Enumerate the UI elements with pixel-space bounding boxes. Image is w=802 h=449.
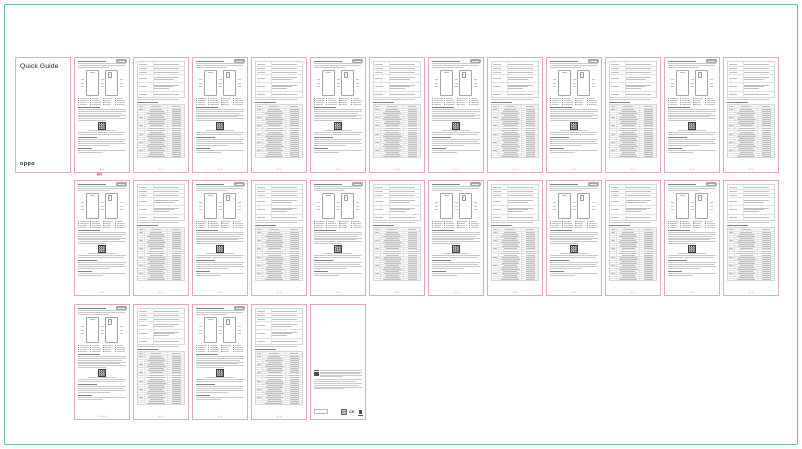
skeleton-line [172, 146, 181, 147]
skeleton-line [758, 111, 774, 112]
skeleton-line [432, 120, 460, 121]
skeleton-line [290, 255, 299, 256]
skeleton-line [78, 143, 126, 144]
skeleton-line [78, 63, 126, 64]
skeleton-line [384, 263, 402, 264]
skeleton-line [640, 136, 656, 137]
skeleton-line [168, 121, 184, 122]
skeleton-line [256, 138, 263, 139]
skeleton-line [145, 370, 168, 371]
frequency-table-row [374, 130, 420, 132]
skeleton-line [356, 209, 359, 210]
skeleton-line: 1 / 2 [193, 181, 247, 295]
skeleton-line [458, 221, 466, 222]
camera-module [226, 195, 230, 200]
skeleton-line [263, 265, 286, 266]
heading-skeleton [196, 395, 210, 396]
skeleton-line [263, 117, 286, 118]
legend-item [587, 104, 598, 105]
skeleton-line [404, 279, 420, 280]
legend-item [432, 225, 443, 226]
table-note-skeleton [609, 222, 651, 223]
skeleton-line [263, 115, 286, 116]
skeleton-line [314, 109, 362, 110]
skeleton-line [735, 140, 758, 141]
skeleton-line [168, 131, 184, 132]
skeleton-line [314, 236, 358, 237]
skeleton-line [758, 269, 774, 270]
skeleton-line [316, 221, 325, 222]
skeleton-line [138, 113, 145, 114]
skeleton-line [139, 191, 147, 192]
skeleton-line [286, 383, 302, 384]
skeleton-line [385, 138, 400, 139]
skeleton-line [408, 234, 417, 235]
frequency-table-row [138, 130, 184, 132]
skeleton-line [383, 236, 401, 237]
skeleton-line [139, 106, 143, 107]
skeleton-line [384, 246, 401, 247]
skeleton-line [198, 98, 207, 99]
skeleton-line [729, 125, 733, 126]
skeleton-line [610, 83, 626, 91]
skeleton-line [762, 267, 771, 268]
skeleton-line [263, 257, 286, 258]
heading-skeleton [196, 148, 210, 149]
skeleton-line [145, 248, 168, 249]
heading-skeleton [550, 271, 564, 272]
skeleton-line [145, 252, 168, 253]
skeleton-line [729, 109, 733, 110]
legend-item [115, 351, 126, 352]
skeleton-line [139, 68, 147, 69]
skeleton-line [381, 279, 404, 280]
frequency-table-row [492, 258, 538, 260]
skeleton-line [375, 257, 379, 258]
legend-item [115, 347, 126, 348]
skeleton-line [508, 195, 532, 196]
skeleton-line [474, 209, 477, 210]
skeleton-line [670, 225, 677, 226]
skeleton-line [267, 111, 282, 112]
skeleton-line [353, 102, 361, 103]
skeleton-line [267, 138, 282, 139]
skeleton-line [644, 265, 653, 266]
legend-item [550, 102, 561, 103]
skeleton-line [762, 123, 771, 124]
skeleton-line [168, 238, 184, 239]
skeleton-line [404, 273, 420, 274]
skeleton-line [492, 121, 499, 122]
skeleton-line [610, 134, 617, 135]
skeleton-line [81, 79, 84, 80]
skeleton-line [138, 265, 145, 266]
frequency-table [137, 227, 185, 281]
skeleton-line [374, 62, 390, 66]
skeleton-line [501, 136, 520, 137]
skeleton-line [375, 229, 379, 230]
skeleton-line [263, 113, 286, 114]
spec-table-row [138, 329, 184, 338]
skeleton-line [385, 111, 400, 112]
skeleton-line [728, 250, 735, 251]
skeleton-line [682, 227, 691, 228]
skeleton-line [381, 148, 404, 149]
skeleton-line [694, 102, 700, 103]
skeleton-line [526, 251, 535, 252]
skeleton-line [150, 115, 163, 116]
skeleton-line [267, 154, 282, 155]
skeleton-line [493, 187, 501, 188]
legend-item [196, 351, 207, 352]
skeleton-line [222, 221, 230, 222]
legend-item [90, 349, 101, 350]
frequency-table-header [256, 105, 302, 108]
skeleton-line [235, 225, 243, 226]
skeleton-line [316, 102, 323, 103]
skeleton-line [198, 349, 205, 350]
skeleton-line [691, 206, 694, 207]
skeleton-line [147, 279, 165, 280]
skeleton-line [682, 221, 689, 222]
skeleton-line [640, 254, 656, 255]
skeleton-line [492, 127, 499, 128]
skeleton-line [139, 187, 147, 188]
skeleton-line [729, 209, 737, 210]
skeleton-line [314, 65, 361, 66]
skeleton-line [139, 319, 147, 320]
skeleton-line [728, 190, 744, 193]
skeleton-line [117, 345, 123, 346]
skeleton-line [265, 383, 284, 384]
skeleton-line [762, 265, 771, 266]
skeleton-line [501, 269, 520, 270]
skeleton-line [640, 111, 656, 112]
frequency-table-row [728, 151, 774, 153]
skeleton-line [138, 259, 145, 260]
skeleton-line [172, 401, 181, 402]
frequency-table [255, 104, 303, 158]
spec-table-row [728, 205, 774, 214]
skeleton-line [758, 148, 774, 149]
skeleton-line [404, 248, 420, 249]
skeleton-line [729, 117, 733, 118]
legend-item [705, 223, 716, 224]
skeleton-line [640, 248, 656, 249]
skeleton-line [78, 234, 126, 235]
skeleton-line [408, 244, 417, 245]
skeleton-line [267, 368, 281, 369]
spec-table-row [138, 313, 184, 317]
skeleton-line [640, 146, 656, 147]
skeleton-line [257, 68, 265, 69]
specs-page: 2 / 2 [723, 180, 779, 296]
skeleton-line [314, 134, 360, 135]
skeleton-line [564, 227, 573, 228]
frequency-table-row [728, 249, 774, 251]
skeleton-line [622, 275, 634, 276]
skeleton-line [738, 150, 755, 151]
skeleton-line [290, 123, 299, 124]
frequency-table-row [610, 264, 656, 266]
skeleton-line [640, 234, 656, 235]
skeleton-line [744, 202, 764, 203]
skeleton-line [138, 318, 154, 321]
skeleton-line [390, 75, 420, 82]
skeleton-line [758, 250, 774, 251]
skeleton-line [504, 265, 517, 266]
spec-table-row [610, 189, 656, 193]
skeleton-line [272, 211, 287, 212]
skeleton-line [550, 262, 598, 263]
frequency-table-row [610, 247, 656, 249]
skeleton-line [222, 225, 228, 226]
skeleton-line [617, 232, 640, 233]
skeleton-line [92, 349, 101, 350]
skeleton-line [381, 138, 404, 139]
skeleton-line [150, 362, 163, 363]
skeleton-line [670, 102, 677, 103]
skeleton-line [374, 238, 381, 239]
skeleton-line [168, 366, 184, 367]
skeleton-line [172, 232, 181, 233]
skeleton-line [728, 194, 744, 197]
skeleton-line [290, 142, 299, 143]
frequency-table-row [138, 390, 184, 392]
skeleton-line [526, 156, 535, 157]
skeleton-line [138, 271, 145, 272]
skeleton-line [196, 363, 238, 364]
skeleton-line [78, 186, 126, 187]
skeleton-line [256, 259, 263, 260]
frequency-table-row [374, 270, 420, 272]
skeleton-line [622, 255, 636, 256]
language-tab-label [590, 184, 597, 185]
skeleton-line [154, 319, 178, 320]
skeleton-line [611, 64, 619, 65]
skeleton-line [138, 393, 145, 394]
skeleton-line [728, 83, 744, 91]
skeleton-line [314, 139, 362, 140]
frequency-table-row [492, 112, 538, 114]
skeleton-line [314, 132, 362, 133]
skeleton-line [385, 234, 400, 235]
legend-item [326, 223, 337, 224]
skeleton-line [149, 271, 163, 272]
skeleton-line [78, 257, 124, 258]
skeleton-line [145, 240, 168, 241]
skeleton-line [199, 86, 202, 87]
skeleton-line [640, 275, 656, 276]
skeleton-line [257, 333, 265, 334]
skeleton-line [196, 312, 243, 313]
skeleton-line [762, 242, 771, 243]
skeleton-line [78, 390, 126, 391]
skeleton-line [728, 206, 744, 214]
frequency-table-row [138, 126, 184, 128]
skeleton-line [138, 236, 145, 237]
skeleton-line [492, 265, 499, 266]
skeleton-line [196, 314, 227, 315]
skeleton-line [286, 257, 302, 258]
skeleton-line [735, 150, 758, 151]
skeleton-line [145, 265, 168, 266]
page-footer: 1 / 2 [446, 292, 467, 294]
spec-table-row [492, 189, 538, 193]
phone-diagrams [196, 70, 244, 96]
skeleton-line: 1 / 2 / 3 [75, 305, 129, 419]
skeleton-line: 2 / 2 [370, 181, 424, 295]
legend-item [78, 345, 89, 346]
frequency-table-row [492, 126, 538, 128]
skeleton-line [290, 364, 299, 365]
skeleton-line [623, 106, 633, 107]
skeleton-line [762, 136, 771, 137]
skeleton-line [92, 221, 99, 222]
skeleton-line [290, 387, 299, 388]
skeleton-line [80, 102, 87, 103]
skeleton-line [314, 273, 362, 274]
skeleton-line [150, 356, 162, 357]
skeleton-line [492, 242, 499, 243]
legend-grid [668, 221, 716, 228]
skeleton-line [168, 374, 184, 375]
skeleton-line [729, 265, 733, 266]
skeleton-line [374, 121, 381, 122]
frequency-table-row [374, 149, 420, 151]
skeleton-line [168, 362, 184, 363]
skeleton-line [744, 217, 768, 218]
skeleton-line [758, 115, 774, 116]
skeleton-line [139, 86, 147, 87]
skeleton-line [381, 134, 404, 135]
skeleton-line [257, 257, 261, 258]
skeleton-line [80, 227, 87, 228]
skeleton-line [256, 362, 263, 363]
skeleton-line [404, 154, 420, 155]
skeleton-line [168, 263, 184, 264]
skeleton-line [314, 262, 362, 263]
skeleton-line [499, 265, 522, 266]
language-tab [116, 306, 127, 310]
table-note-skeleton [137, 99, 179, 100]
skeleton-line [610, 121, 617, 122]
skeleton-line [735, 275, 758, 276]
frequency-table-row [610, 260, 656, 262]
skeleton-line [762, 152, 771, 153]
skeleton-line [435, 206, 438, 207]
frequency-table-row [374, 145, 420, 147]
skeleton-line [196, 186, 244, 187]
skeleton-line [492, 273, 499, 274]
skeleton-line [564, 225, 573, 226]
skeleton-line [738, 134, 755, 135]
frequency-table-row [138, 396, 184, 398]
frequency-table-row [492, 128, 538, 130]
skeleton-line [320, 373, 360, 374]
callout-ticks [81, 79, 84, 86]
skeleton-line [286, 362, 302, 363]
skeleton-line [374, 271, 381, 272]
skeleton-line [256, 238, 263, 239]
skeleton-line [735, 250, 758, 251]
skeleton-line [390, 194, 420, 197]
skeleton-line [375, 68, 383, 69]
skeleton-line [610, 232, 617, 233]
skeleton-line [592, 209, 595, 210]
regulatory-page: CE [310, 304, 366, 420]
skeleton-line [78, 115, 126, 116]
skeleton-line [499, 140, 522, 141]
frequency-table-row [492, 268, 538, 270]
skeleton-line [172, 234, 181, 235]
skeleton-line [196, 262, 244, 263]
skeleton-line [168, 267, 184, 268]
skeleton-line [374, 125, 381, 126]
skeleton-line [735, 119, 758, 120]
skeleton-line [404, 131, 420, 132]
skeleton-line [328, 223, 336, 224]
legend-item [693, 227, 704, 228]
language-tab-label [236, 61, 243, 62]
skeleton-line [196, 145, 228, 146]
skeleton-line [78, 386, 126, 387]
frequency-table-row [610, 110, 656, 112]
skeleton-line [404, 113, 420, 114]
skeleton-line [148, 144, 164, 145]
spec-table-row [492, 205, 538, 214]
skeleton-line [526, 229, 534, 230]
spec-table [727, 184, 775, 221]
skeleton-line [432, 234, 480, 235]
skeleton-line [432, 143, 480, 144]
skeleton-line [522, 250, 538, 251]
skeleton-line [381, 142, 404, 143]
skeleton-line [762, 238, 771, 239]
spec-table-row [492, 91, 538, 98]
skeleton-line [256, 67, 272, 70]
skeleton-line [374, 198, 390, 205]
skeleton-line [740, 238, 753, 239]
specs-page: 2 / 2 [251, 304, 307, 420]
skeleton-line [375, 195, 383, 196]
skeleton-line [263, 242, 286, 243]
skeleton-line [81, 209, 84, 210]
callout-ticks [474, 202, 477, 209]
spec-table [373, 61, 421, 98]
skeleton-line [390, 83, 420, 91]
frequency-table-row [138, 367, 184, 369]
spec-table-row [138, 62, 184, 66]
skeleton-line [172, 379, 181, 380]
skeleton-line [148, 263, 166, 264]
skeleton-line [617, 261, 640, 262]
skeleton-line [290, 152, 299, 153]
skeleton-line [550, 139, 598, 140]
skeleton-line [492, 254, 499, 255]
skeleton-line [458, 227, 464, 228]
skeleton-line [640, 244, 656, 245]
skeleton-line [492, 257, 499, 258]
skeleton-line [744, 62, 774, 66]
skeleton-line [501, 236, 519, 237]
skeleton-line [741, 106, 751, 107]
skeleton-line [257, 372, 261, 373]
frequency-table-row [610, 233, 656, 235]
legend-item [351, 98, 362, 99]
skeleton-line [492, 198, 508, 205]
skeleton-line [640, 105, 656, 108]
